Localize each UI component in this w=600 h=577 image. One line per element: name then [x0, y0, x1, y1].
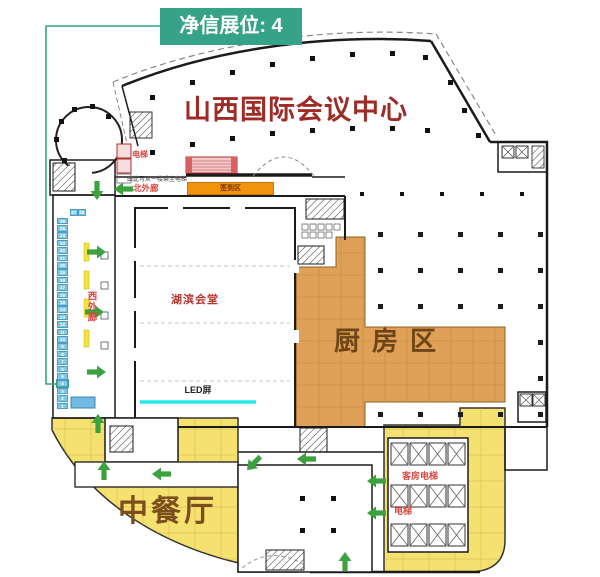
booth-2: 2: [57, 395, 68, 402]
booth-28: 28: [78, 209, 86, 216]
booth-17: 17: [57, 284, 68, 291]
floor-plan: 净信展位: 4 山西国际会议中心 电梯 由此可从一楼乘坐电梯 北外廊 签到区 西…: [0, 0, 600, 577]
lakeside-hall-label: 湖滨会堂: [160, 295, 230, 306]
west-corridor-label: 西外廊: [86, 291, 96, 323]
right-arrow-icon: [87, 366, 106, 379]
booth-1: 1: [57, 403, 68, 410]
booth-9: 9: [57, 343, 68, 350]
venue-title: 山西国际会议中心: [165, 97, 427, 124]
restaurant-label: 中餐厅: [115, 497, 213, 527]
down-arrow-icon: [91, 181, 104, 200]
booth-6: 6: [57, 366, 68, 373]
booth-14: 14: [57, 306, 68, 313]
booth-26: 26: [57, 218, 68, 225]
booth-27: 27: [70, 209, 78, 216]
booth-23: 23: [57, 240, 68, 247]
booth-18: 18: [57, 277, 68, 284]
booth-12: 12: [57, 321, 68, 328]
booth-13: 13: [57, 314, 68, 321]
booth-19: 19: [57, 269, 68, 276]
booth-3: 3: [57, 388, 68, 395]
booth-20: 20: [57, 262, 68, 269]
booth-4: 4: [57, 380, 68, 387]
elevator-nw-label: 电梯: [132, 151, 148, 159]
left-arrow-icon: [114, 183, 133, 196]
led-screen-label: LED屏: [163, 386, 233, 395]
booth-11: 11: [57, 329, 68, 336]
guest-elevator-label: 客房电梯: [402, 472, 438, 481]
booth-15: 15: [57, 299, 68, 306]
booth-badge: 净信展位: 4: [160, 8, 302, 45]
booth-22: 22: [57, 247, 68, 254]
left-arrow-icon: [297, 453, 316, 466]
elevator-core: [388, 438, 468, 552]
booth-16: 16: [57, 292, 68, 299]
booth-21: 21: [57, 255, 68, 262]
booth-5: 5: [57, 373, 68, 380]
floor-plan-drawing: [0, 0, 600, 577]
north-corridor-label: 北外廊: [133, 184, 159, 193]
kitchen-label: 厨房区: [322, 328, 434, 354]
registration-area-bar: 签到区: [187, 182, 274, 195]
booth-10: 10: [57, 336, 68, 343]
booth-25: 25: [57, 225, 68, 232]
booth-24: 24: [57, 232, 68, 239]
elevator-se-label: 电梯: [394, 507, 412, 516]
booth-7: 7: [57, 358, 68, 365]
booth-8: 8: [57, 351, 68, 358]
